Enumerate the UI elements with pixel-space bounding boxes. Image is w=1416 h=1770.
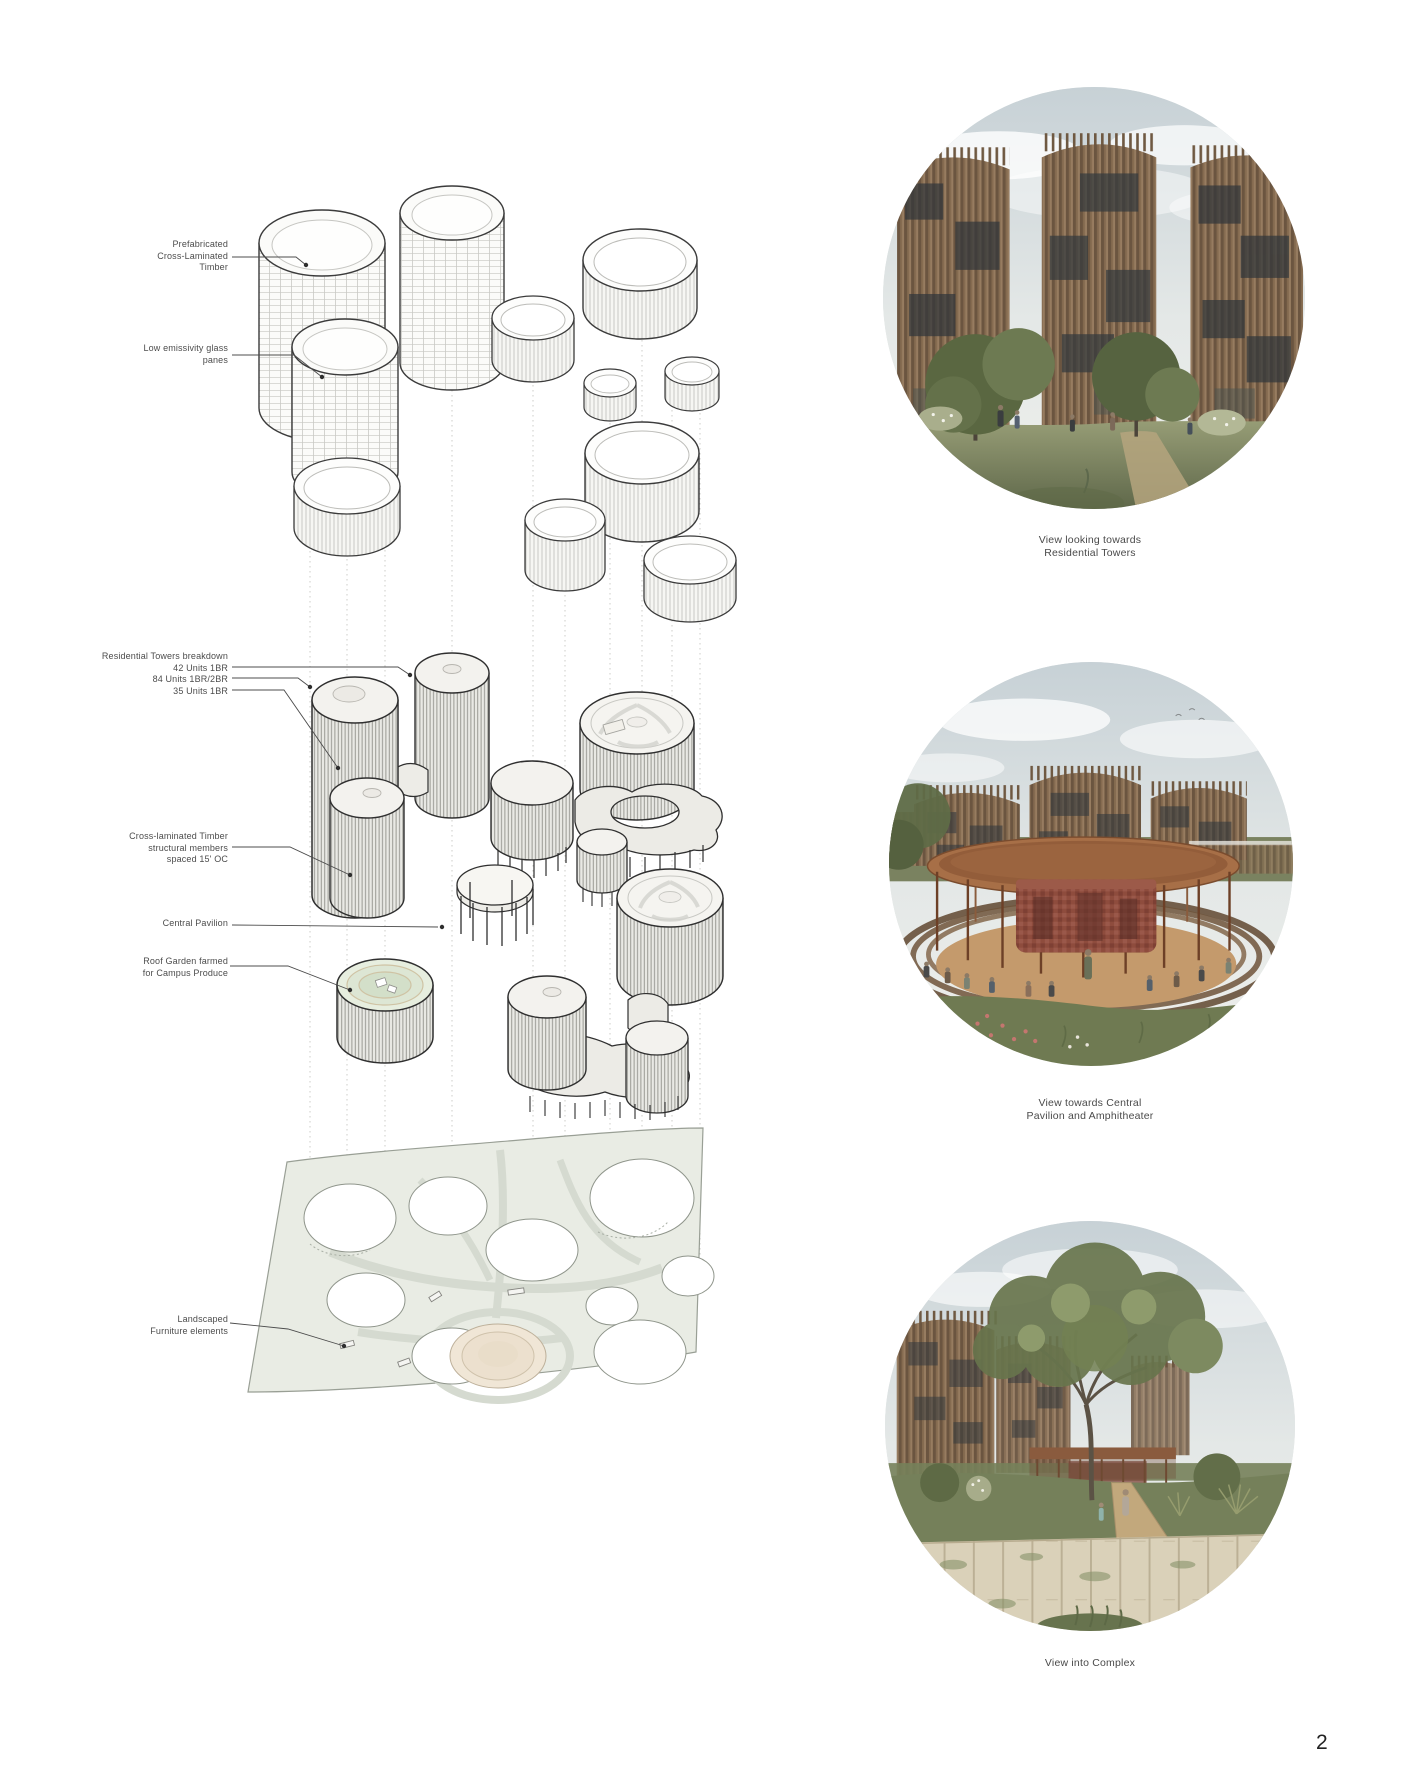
central-pavilion-shape — [457, 865, 533, 946]
site-plan-layer — [248, 1128, 714, 1400]
roof-garden-shape — [337, 959, 433, 1063]
annotation-prefab-clt: Prefabricated Cross-Laminated Timber — [0, 239, 228, 274]
annotation-central-pavilion: Central Pavilion — [0, 918, 228, 930]
facade-shell-layer — [259, 186, 736, 622]
presentation-sheet: Prefabricated Cross-Laminated Timber Low… — [0, 0, 1416, 1770]
page-number: 2 — [1316, 1731, 1328, 1755]
caption-residential-towers: View looking towards Residential Towers — [930, 534, 1250, 559]
annotation-roof-garden: Roof Garden farmed for Campus Produce — [0, 956, 228, 979]
figure-complex-view — [885, 1221, 1295, 1631]
render-boardwalk — [885, 1533, 1295, 1631]
photo-residential-towers — [883, 87, 1305, 509]
annotation-towers-breakdown: Residential Towers breakdown 42 Units 1B… — [0, 651, 228, 697]
caption-central-pavilion: View towards Central Pavilion and Amphit… — [930, 1097, 1250, 1122]
figure-central-pavilion-view — [889, 662, 1293, 1066]
annotation-clt-members: Cross-laminated Timber structural member… — [0, 831, 228, 866]
caption-complex-view: View into Complex — [930, 1657, 1250, 1670]
annotation-landscaped-furniture: Landscaped Furniture elements — [0, 1314, 228, 1337]
annotation-low-e-glass: Low emissivity glass panes — [0, 343, 228, 366]
tower-massing-layer — [312, 653, 723, 1120]
figure-residential-towers-view — [883, 87, 1305, 509]
photo-complex-view — [885, 1221, 1295, 1631]
photo-central-pavilion — [889, 662, 1293, 1066]
render-foreground-grass — [889, 996, 1293, 1066]
